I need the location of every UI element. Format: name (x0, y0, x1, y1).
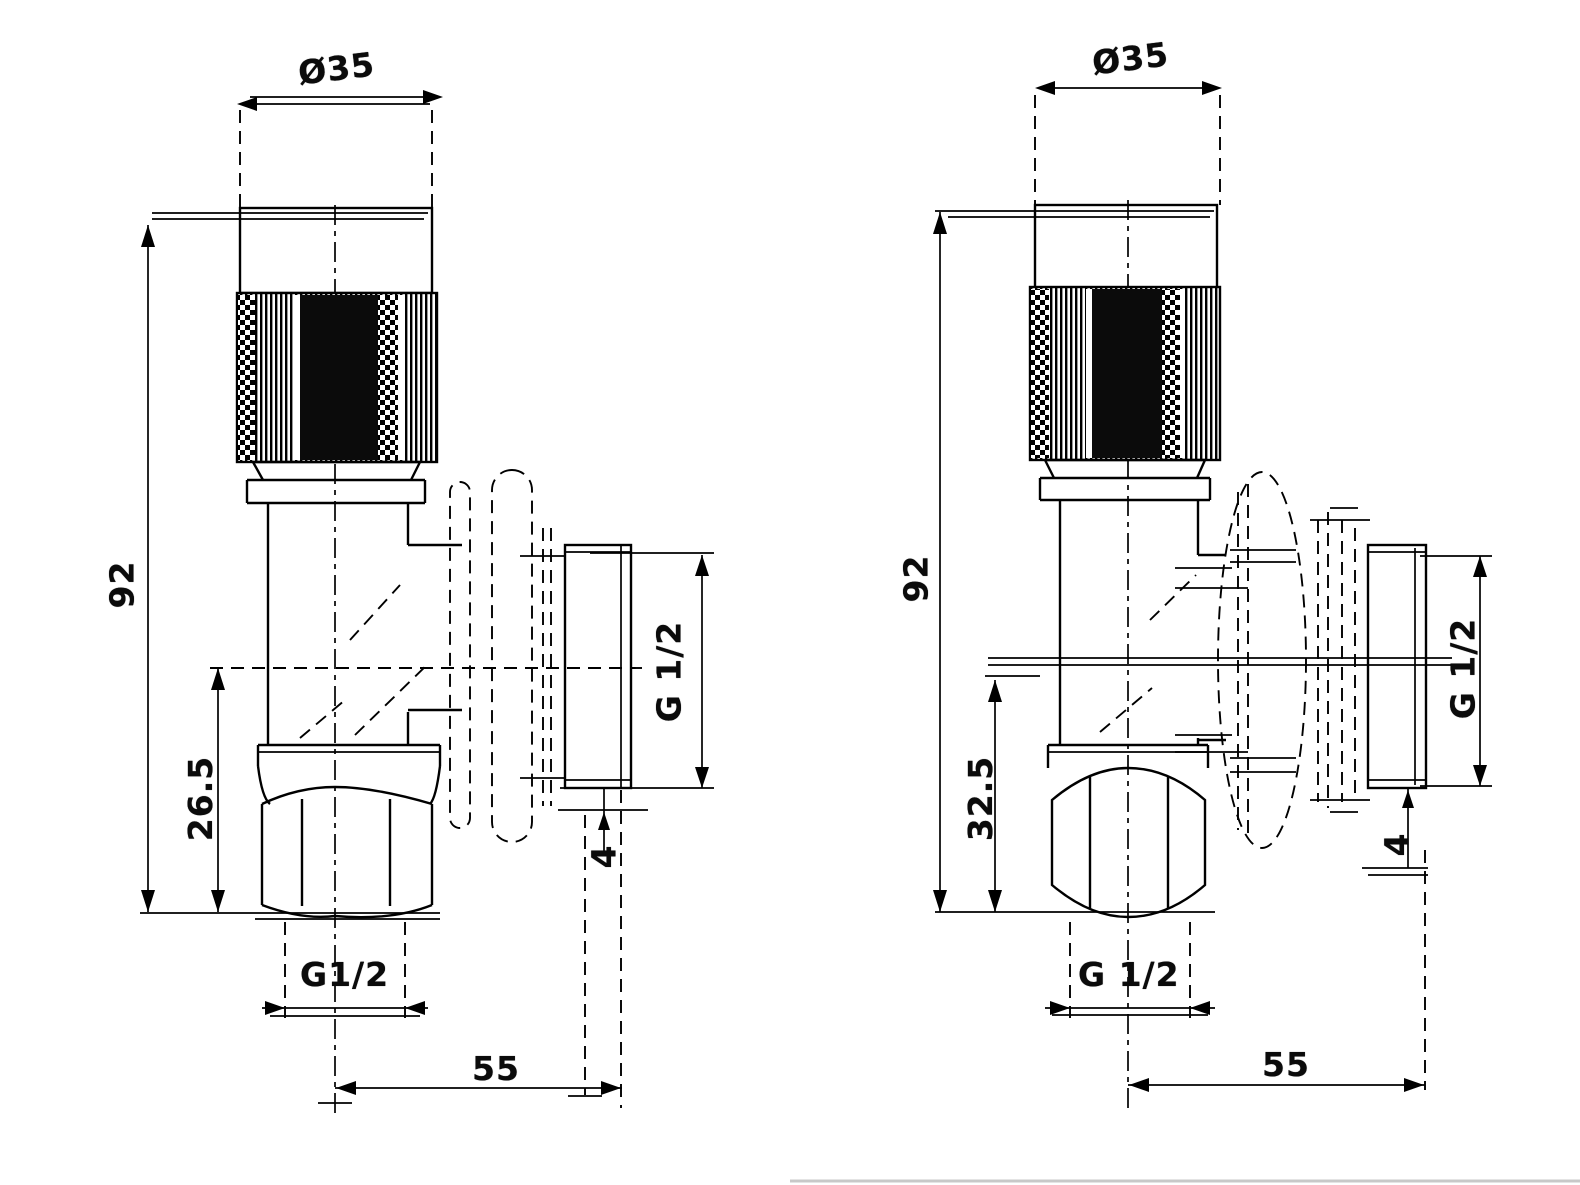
dim-label-inlet-thread: G 1/2 (1078, 958, 1180, 991)
valve-line-art (0, 0, 1580, 1185)
dim-label-top-diameter: Ø35 (1090, 37, 1170, 79)
dim-label-height: 92 (105, 561, 138, 609)
dim-label-step: 4 (1380, 833, 1413, 857)
dim-label-top-diameter: Ø35 (296, 47, 376, 89)
dim-label-outlet-thread: G 1/2 (652, 621, 685, 723)
dim-outlet-thread (695, 555, 709, 788)
dim-top-diameter (237, 90, 443, 208)
dim-top-diameter (1035, 81, 1222, 205)
dim-label-inlet-thread: G1/2 (300, 958, 389, 991)
left-valve-view (140, 90, 714, 1118)
handle-cap (935, 205, 1217, 290)
bonnet (1040, 460, 1210, 500)
knurl-grip (237, 293, 437, 462)
bonnet (247, 462, 425, 503)
dim-depth (318, 1081, 622, 1103)
dim-step (598, 788, 610, 852)
dim-label-outlet-thread: G 1/2 (1446, 618, 1479, 720)
dim-height (141, 225, 155, 912)
dim-label-step: 4 (587, 845, 620, 869)
technical-drawing-canvas: Ø35 92 26.5 G 1/2 4 G1/2 55 Ø35 92 32.5 … (0, 0, 1580, 1185)
valve-body (268, 503, 430, 745)
right-valve-view (933, 81, 1492, 1112)
handle-cap (152, 208, 432, 293)
dim-step (1362, 788, 1428, 875)
dim-label-depth: 55 (472, 1052, 520, 1085)
dim-label-bottom-offset: 26.5 (184, 756, 217, 841)
dim-label-height: 92 (899, 555, 932, 603)
knurl-grip (1030, 287, 1220, 460)
dim-label-depth: 55 (1262, 1048, 1310, 1081)
dim-label-bottom-offset: 32.5 (964, 756, 997, 841)
